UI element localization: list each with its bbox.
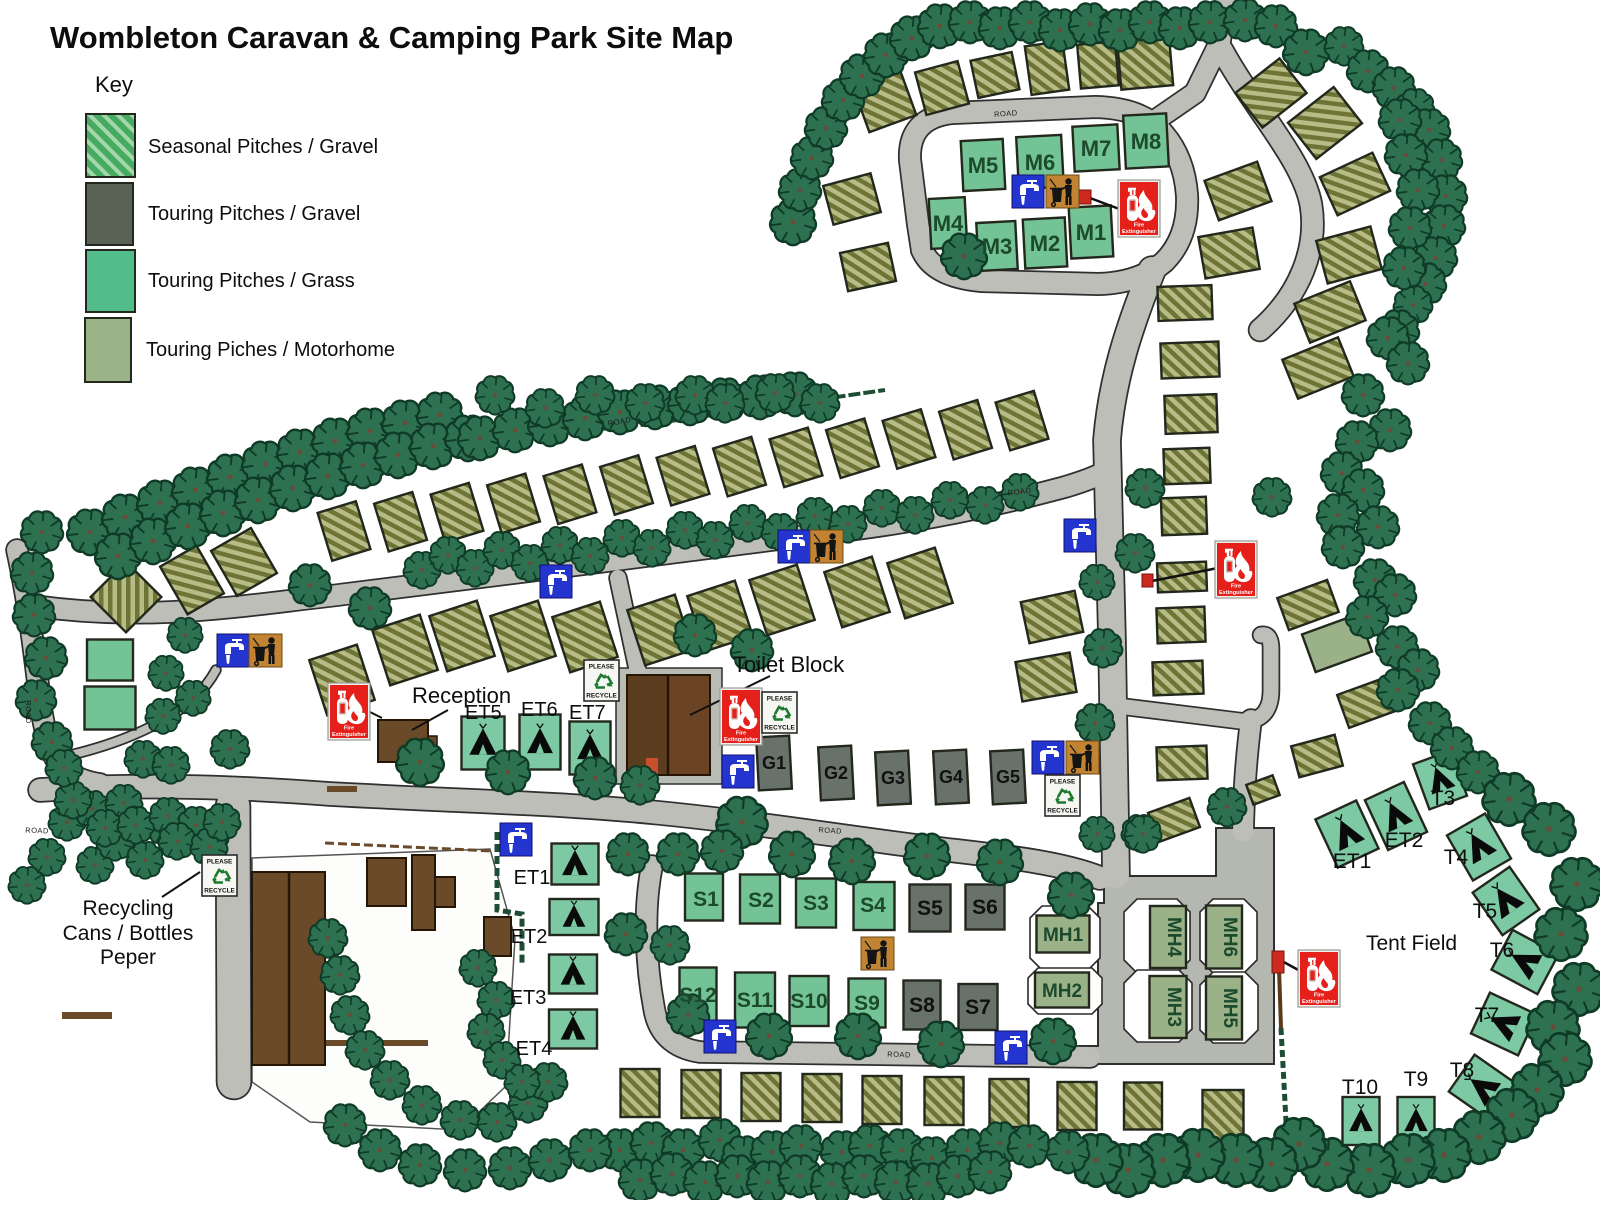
svg-text:M2: M2 (1030, 231, 1061, 256)
svg-text:G2: G2 (824, 763, 848, 783)
svg-text:Touring Pitches / Grass: Touring Pitches / Grass (148, 270, 355, 292)
svg-text:S2: S2 (748, 889, 774, 912)
svg-text:T9: T9 (1404, 1068, 1429, 1091)
svg-text:T10: T10 (1342, 1076, 1378, 1099)
svg-text:G4: G4 (939, 767, 963, 787)
svg-text:T7: T7 (1475, 1004, 1500, 1027)
svg-text:M5: M5 (968, 153, 999, 178)
svg-text:ROAD: ROAD (887, 1050, 911, 1060)
svg-text:M4: M4 (933, 211, 964, 236)
svg-text:MH6: MH6 (1219, 917, 1240, 957)
svg-text:ET5: ET5 (465, 702, 502, 724)
svg-text:Recycling: Recycling (82, 897, 173, 920)
svg-text:MH4: MH4 (1163, 917, 1184, 958)
svg-text:Tent Field: Tent Field (1366, 932, 1457, 955)
svg-text:T6: T6 (1490, 939, 1515, 962)
svg-text:ROAD: ROAD (818, 825, 842, 836)
svg-text:S11: S11 (737, 989, 774, 1012)
svg-text:S3: S3 (803, 892, 829, 915)
svg-text:T4: T4 (1444, 846, 1469, 869)
svg-text:ET4: ET4 (516, 1038, 553, 1060)
svg-text:S1: S1 (693, 888, 719, 911)
svg-text:Peper: Peper (100, 946, 156, 969)
svg-text:T8: T8 (1450, 1059, 1475, 1082)
svg-text:MH2: MH2 (1042, 981, 1082, 1002)
svg-text:Touring Piches / Motorhome: Touring Piches / Motorhome (146, 339, 395, 361)
svg-text:S12: S12 (679, 984, 716, 1007)
svg-text:M8: M8 (1131, 129, 1162, 154)
svg-text:G3: G3 (881, 768, 905, 788)
svg-text:MH5: MH5 (1219, 988, 1240, 1029)
svg-text:ET1: ET1 (1333, 850, 1372, 873)
svg-text:Toilet Block: Toilet Block (733, 652, 845, 677)
svg-text:S4: S4 (860, 894, 886, 917)
svg-text:Touring Pitches / Gravel: Touring Pitches / Gravel (148, 203, 360, 225)
svg-text:S6: S6 (972, 896, 998, 919)
svg-text:M7: M7 (1081, 136, 1112, 161)
svg-text:Seasonal Pitches / Gravel: Seasonal Pitches / Gravel (148, 136, 378, 158)
svg-text:S5: S5 (917, 897, 943, 920)
svg-text:ET6: ET6 (521, 699, 558, 721)
svg-text:S7: S7 (965, 996, 991, 1019)
svg-text:ET1: ET1 (514, 867, 551, 889)
svg-text:T5: T5 (1473, 900, 1498, 923)
svg-text:G5: G5 (996, 767, 1020, 787)
svg-text:Wombleton Caravan & Camping Pa: Wombleton Caravan & Camping Park Site Ma… (50, 20, 733, 55)
svg-text:Key: Key (95, 72, 133, 97)
svg-text:M3: M3 (982, 234, 1013, 259)
svg-text:M6: M6 (1025, 150, 1056, 175)
svg-text:S10: S10 (790, 990, 827, 1013)
svg-text:MH3: MH3 (1163, 987, 1184, 1027)
svg-text:MH1: MH1 (1043, 925, 1084, 946)
svg-text:ROAD: ROAD (994, 108, 1018, 119)
svg-text:Cans / Bottles: Cans / Bottles (63, 922, 194, 945)
svg-text:ROAD: ROAD (24, 700, 33, 724)
svg-text:ET7: ET7 (569, 702, 606, 724)
svg-text:ET2: ET2 (511, 926, 548, 948)
svg-text:ET2: ET2 (1385, 829, 1424, 852)
svg-text:G1: G1 (762, 753, 786, 773)
svg-text:S9: S9 (854, 992, 880, 1015)
svg-text:M1: M1 (1076, 220, 1107, 245)
svg-text:S8: S8 (909, 994, 935, 1017)
svg-text:ET3: ET3 (510, 987, 547, 1009)
svg-text:ROAD: ROAD (25, 826, 49, 836)
svg-text:T3: T3 (1431, 787, 1456, 810)
